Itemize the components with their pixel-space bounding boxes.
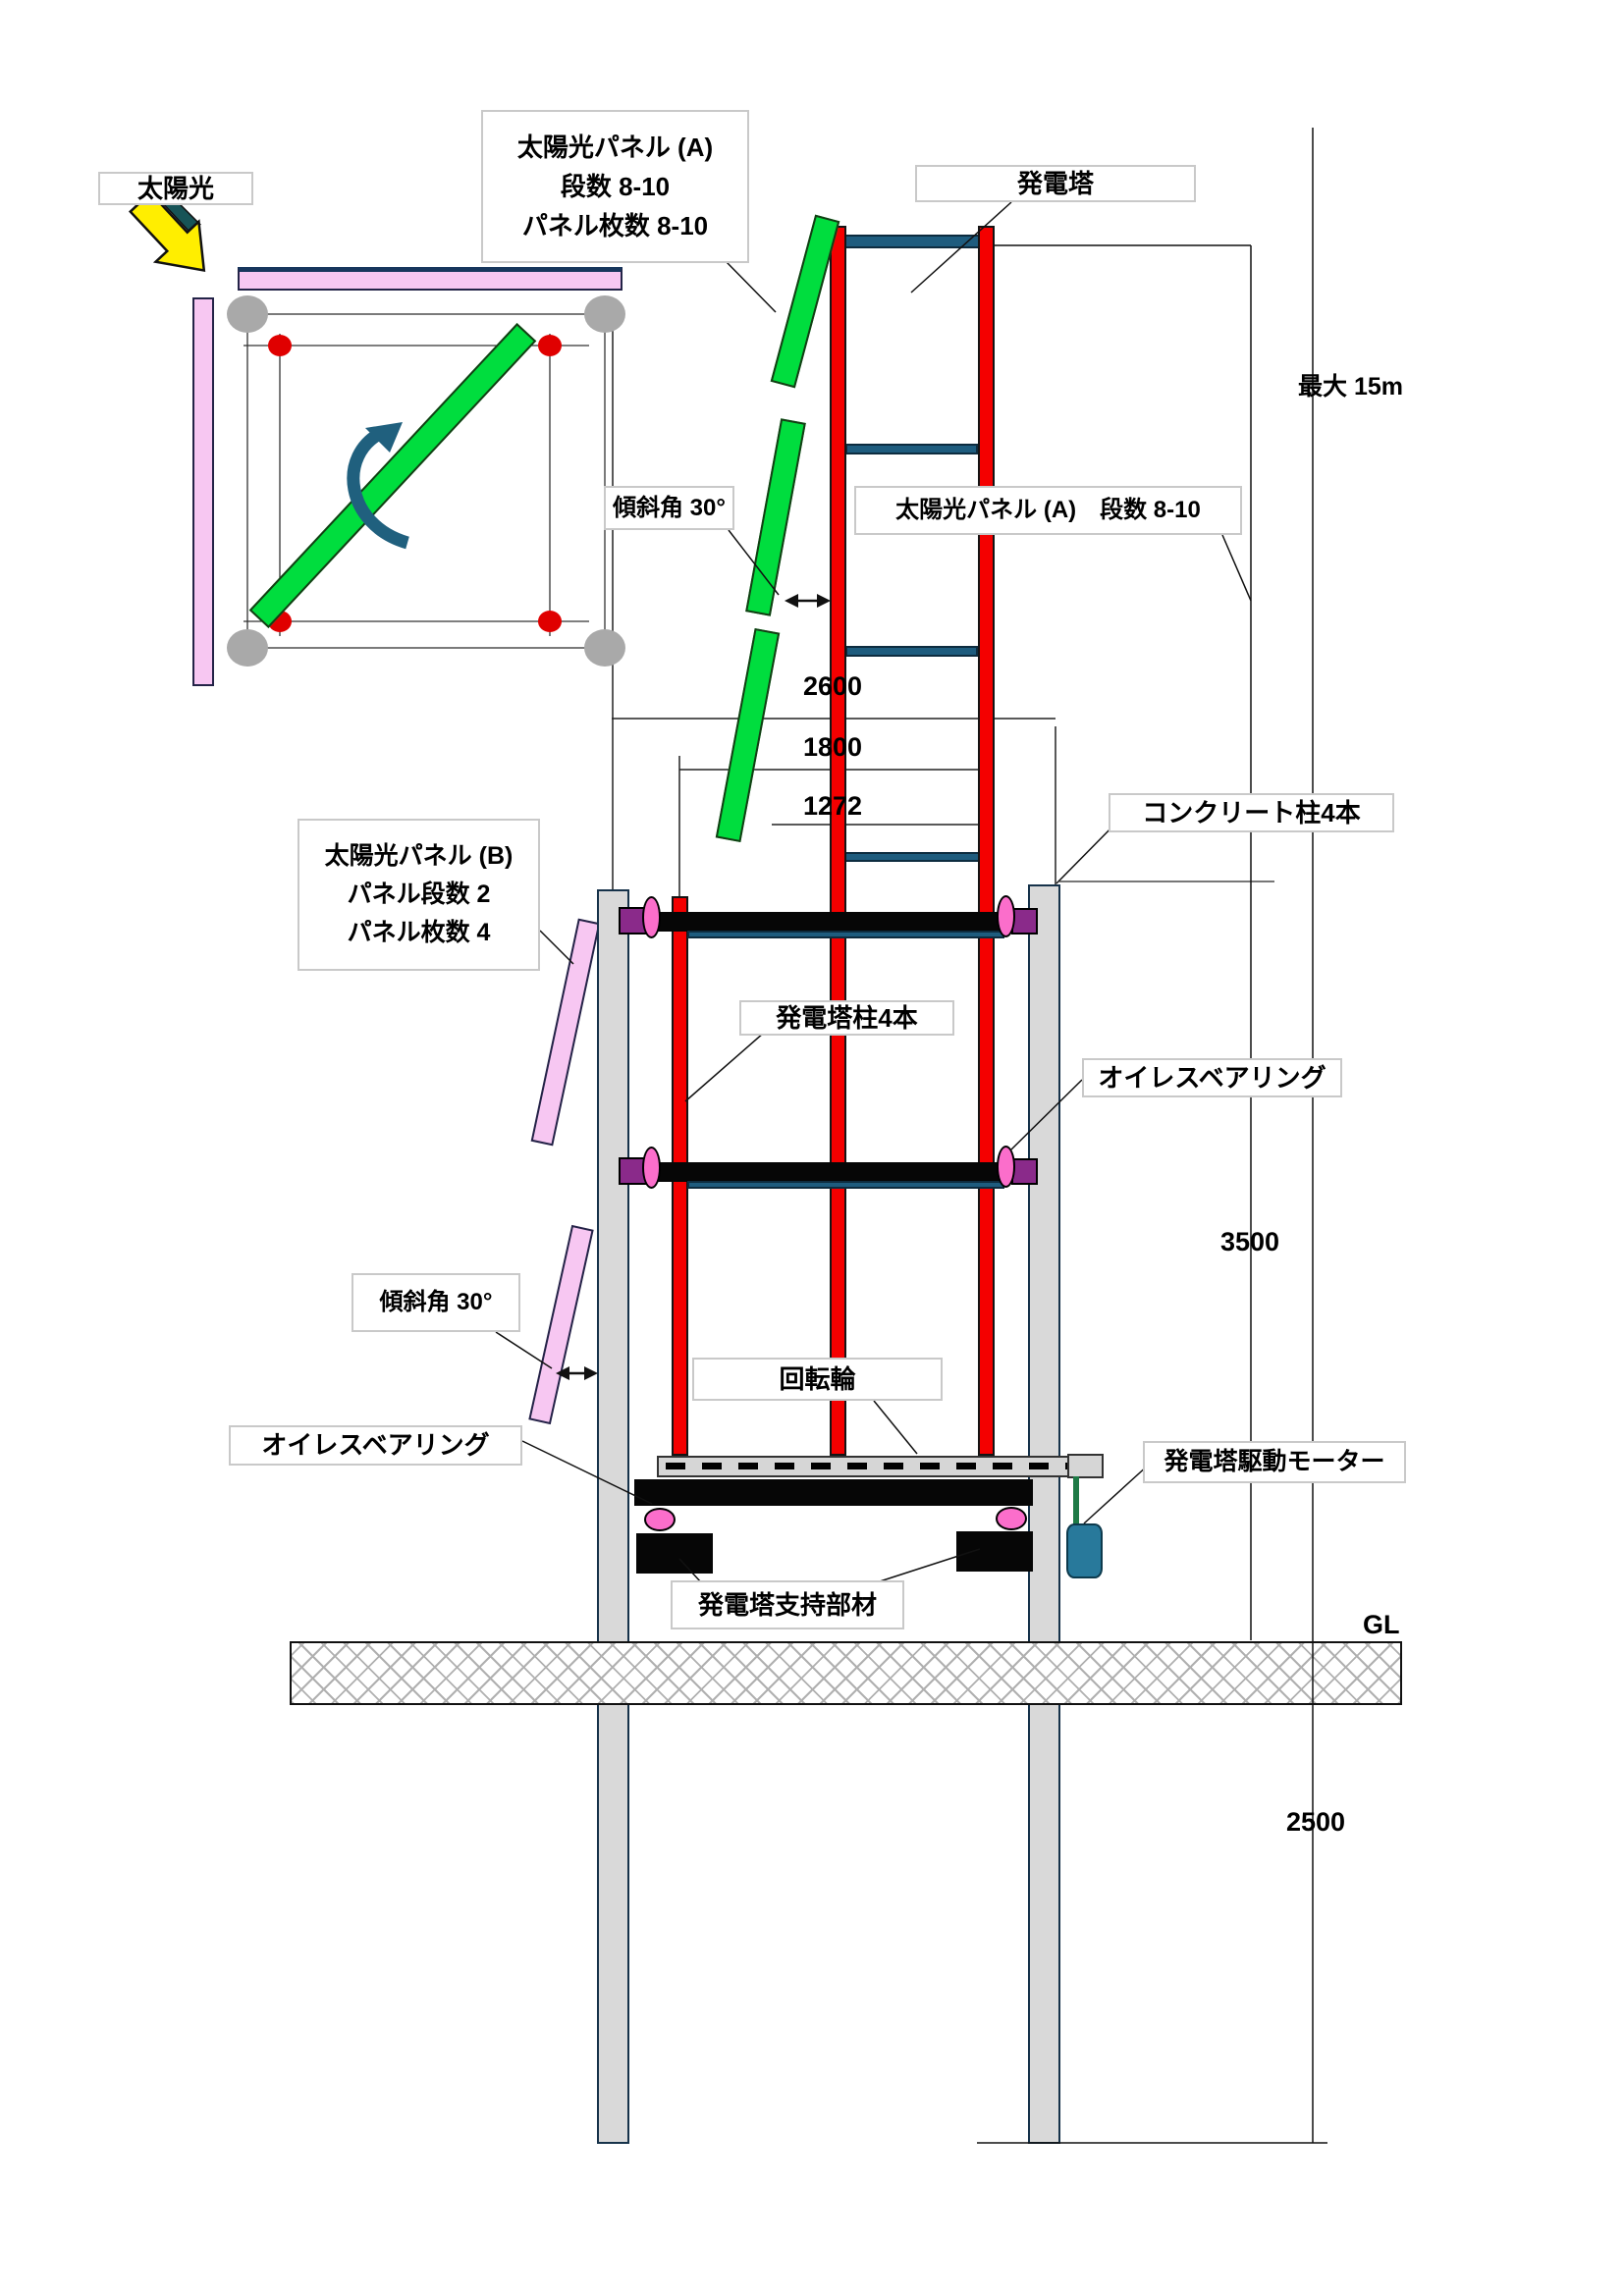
label-tilt-upper-text: 傾斜角 30° bbox=[613, 490, 726, 526]
label-sunlight: 太陽光 bbox=[98, 172, 253, 205]
tower-beam-4 bbox=[839, 852, 980, 862]
label-tower: 発電塔 bbox=[915, 165, 1196, 202]
ground-hatch bbox=[290, 1641, 1402, 1705]
plan-tower-column-dot-tl bbox=[268, 335, 292, 356]
diagram-canvas: 太陽光 太陽光パネル (A) 段数 8-10 パネル枚数 8-10 発電塔 太陽… bbox=[0, 0, 1624, 2296]
dim-text-max-height: 最大 15m bbox=[1298, 367, 1426, 402]
label-motor: 発電塔駆動モーター bbox=[1143, 1441, 1406, 1483]
plan-panel-b-left bbox=[192, 297, 214, 686]
solar-panel-b-upper bbox=[531, 919, 601, 1147]
label-sunlight-text: 太陽光 bbox=[137, 169, 214, 208]
tower-column-left bbox=[830, 226, 846, 1456]
label-support: 発電塔支持部材 bbox=[671, 1580, 904, 1629]
support-member-left bbox=[636, 1533, 713, 1574]
tower-beam-1 bbox=[837, 235, 992, 248]
dim-text-2500: 2500 bbox=[1267, 1807, 1365, 1838]
label-panel-b-line2: パネル段数 2 bbox=[348, 876, 491, 914]
upper-axle-bar bbox=[650, 912, 1004, 932]
lower-axle-bar bbox=[650, 1162, 1004, 1182]
concrete-column-right bbox=[1028, 884, 1060, 2144]
double-arrow-upper bbox=[785, 594, 831, 608]
label-concrete-cols-text: コンクリート柱4本 bbox=[1142, 793, 1360, 832]
plan-concrete-column-circle-bl bbox=[227, 629, 268, 667]
lower-axle-beam bbox=[687, 1181, 1004, 1189]
support-member-right bbox=[956, 1531, 1033, 1572]
drive-motor bbox=[1066, 1523, 1103, 1578]
tower-beam-3 bbox=[845, 646, 978, 657]
dim-text-3500: 3500 bbox=[1201, 1227, 1299, 1257]
dim-text-1800: 1800 bbox=[784, 732, 882, 763]
lower-bearing-right bbox=[997, 1146, 1015, 1188]
label-tilt-lower-text: 傾斜角 30° bbox=[380, 1284, 493, 1320]
base-bearing-left bbox=[644, 1508, 676, 1531]
label-support-text: 発電塔支持部材 bbox=[698, 1585, 877, 1625]
lower-bearing-block-right bbox=[1011, 1158, 1038, 1185]
motor-shaft bbox=[1073, 1476, 1079, 1525]
leader-bearing-lower bbox=[522, 1441, 652, 1504]
label-panel-a-top-line1: 太陽光パネル (A) bbox=[517, 128, 713, 167]
label-wheel: 回転輪 bbox=[692, 1358, 943, 1401]
plan-tower-column-dot-br bbox=[538, 611, 562, 632]
solar-panel-a-3 bbox=[716, 628, 780, 842]
label-bearing-upper: オイレスベアリング bbox=[1082, 1058, 1342, 1097]
tower-column-right bbox=[978, 226, 995, 1456]
leader-panel-a-mid bbox=[1222, 535, 1251, 601]
label-panel-b: 太陽光パネル (B) パネル段数 2 パネル枚数 4 bbox=[298, 819, 540, 971]
plan-tower-column-dot-tr bbox=[538, 335, 562, 356]
solar-panel-b-lower bbox=[528, 1225, 593, 1424]
label-tower-cols: 発電塔柱4本 bbox=[739, 1000, 954, 1036]
upper-bearing-block-right bbox=[1011, 908, 1038, 934]
plan-frame-outline bbox=[247, 314, 605, 648]
label-tower-cols-text: 発電塔柱4本 bbox=[776, 998, 917, 1038]
label-panel-a-top: 太陽光パネル (A) 段数 8-10 パネル枚数 8-10 bbox=[481, 110, 749, 263]
plan-concrete-column-circle-tr bbox=[584, 295, 625, 333]
label-bearing-upper-text: オイレスベアリング bbox=[1098, 1058, 1326, 1097]
leader-panel-a-top bbox=[725, 260, 776, 312]
annotation-lines-layer bbox=[0, 0, 1624, 2296]
label-bearing-lower: オイレスベアリング bbox=[229, 1425, 522, 1466]
dim-text-2600: 2600 bbox=[784, 671, 882, 702]
rotation-wheel-dashes bbox=[666, 1463, 1096, 1469]
base-bearing-right bbox=[996, 1507, 1027, 1530]
label-panel-a-top-line3: パネル枚数 8-10 bbox=[522, 206, 708, 245]
plan-panel-b-top bbox=[238, 267, 623, 291]
leader-wheel bbox=[874, 1401, 917, 1454]
label-panel-a-mid-text: 太陽光パネル (A) 段数 8-10 bbox=[895, 492, 1201, 528]
upper-bearing-left bbox=[642, 896, 661, 938]
plan-solar-panel-a-diagonal bbox=[249, 323, 537, 628]
label-tilt-upper: 傾斜角 30° bbox=[604, 486, 734, 530]
tower-beam-2 bbox=[845, 444, 978, 454]
upper-axle-beam bbox=[687, 931, 1004, 938]
label-wheel-text: 回転輪 bbox=[779, 1360, 855, 1399]
label-panel-a-mid: 太陽光パネル (A) 段数 8-10 bbox=[854, 486, 1242, 535]
label-bearing-lower-text: オイレスベアリング bbox=[261, 1425, 489, 1465]
leader-tower-cols bbox=[685, 1033, 764, 1101]
label-motor-text: 発電塔駆動モーター bbox=[1164, 1443, 1384, 1481]
label-panel-b-line1: 太陽光パネル (B) bbox=[325, 837, 514, 876]
solar-panel-a-2 bbox=[745, 418, 806, 615]
lower-bearing-left bbox=[642, 1147, 661, 1189]
construction-lines-layer bbox=[0, 0, 1624, 2296]
upper-bearing-right bbox=[997, 895, 1015, 937]
plan-concrete-column-circle-br bbox=[584, 629, 625, 667]
plan-concrete-column-circle-tl bbox=[227, 295, 268, 333]
concrete-column-left bbox=[597, 889, 629, 2144]
dim-text-gl: GL bbox=[1363, 1610, 1412, 1640]
motor-bracket bbox=[1067, 1454, 1104, 1478]
label-concrete-cols: コンクリート柱4本 bbox=[1109, 793, 1394, 832]
label-panel-b-line3: パネル枚数 4 bbox=[348, 914, 491, 952]
label-tower-text: 発電塔 bbox=[1017, 164, 1094, 203]
dim-text-1272: 1272 bbox=[784, 791, 882, 822]
base-support-bar bbox=[634, 1479, 1033, 1506]
label-tilt-lower: 傾斜角 30° bbox=[352, 1273, 520, 1332]
label-panel-a-top-line2: 段数 8-10 bbox=[561, 167, 670, 206]
